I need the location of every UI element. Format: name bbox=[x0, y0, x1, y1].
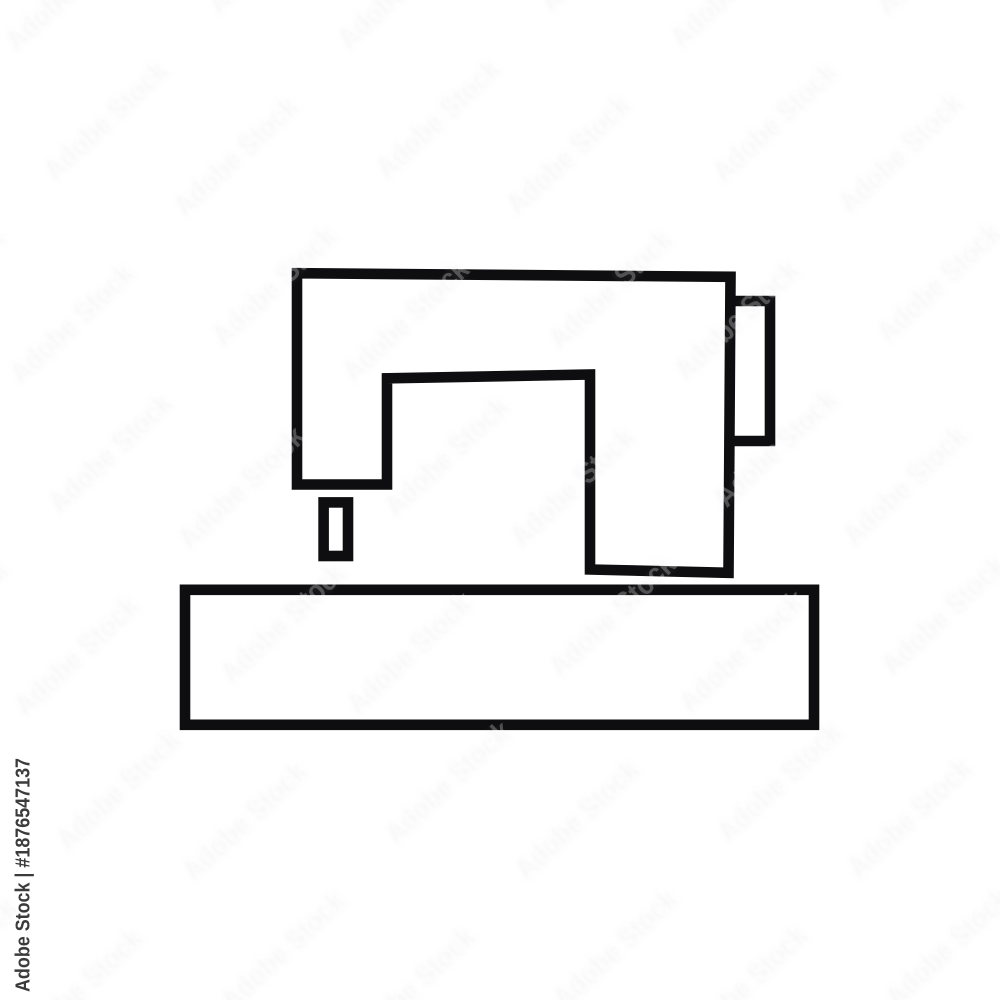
svg-text:Adobe Stock | #1876547137: Adobe Stock | #1876547137 bbox=[12, 758, 35, 992]
